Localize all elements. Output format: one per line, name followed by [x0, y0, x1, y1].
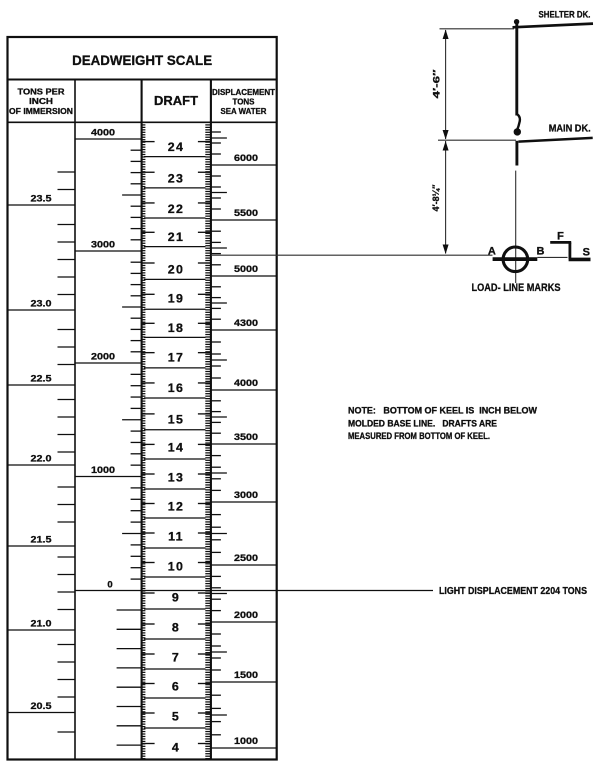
- svg-text:5000: 5000: [234, 264, 258, 275]
- svg-text:23: 23: [168, 171, 184, 185]
- svg-text:4000: 4000: [234, 378, 258, 389]
- svg-text:4′-8¼″: 4′-8¼″: [431, 184, 442, 211]
- svg-text:DEADWEIGHT SCALE: DEADWEIGHT SCALE: [72, 52, 212, 68]
- svg-text:3000: 3000: [234, 490, 258, 501]
- svg-text:17: 17: [168, 351, 184, 365]
- svg-text:DRAFT: DRAFT: [154, 93, 198, 108]
- svg-text:NOTE: BOTTOM OF KEEL IS INC: NOTE: BOTTOM OF KEEL IS INCH BELOW: [348, 406, 538, 416]
- svg-text:1000: 1000: [234, 736, 258, 747]
- svg-text:2500: 2500: [234, 553, 258, 564]
- svg-text:11: 11: [168, 530, 184, 544]
- svg-text:LOAD- LINE MARKS: LOAD- LINE MARKS: [472, 282, 561, 294]
- svg-text:B: B: [537, 245, 545, 257]
- svg-text:S: S: [583, 246, 590, 258]
- svg-text:15: 15: [168, 413, 184, 427]
- svg-text:8: 8: [172, 621, 180, 635]
- svg-text:SEA WATER: SEA WATER: [221, 106, 268, 116]
- svg-text:7: 7: [172, 651, 180, 665]
- svg-text:16: 16: [168, 381, 184, 395]
- svg-text:TONS: TONS: [233, 97, 255, 107]
- svg-text:22.0: 22.0: [31, 454, 52, 465]
- svg-text:4: 4: [172, 741, 180, 755]
- svg-text:5500: 5500: [234, 208, 258, 219]
- svg-text:1000: 1000: [91, 465, 115, 476]
- svg-text:F: F: [557, 231, 564, 243]
- svg-text:21: 21: [168, 230, 184, 244]
- svg-text:18: 18: [168, 321, 184, 335]
- svg-text:5: 5: [172, 710, 180, 724]
- svg-text:24: 24: [168, 140, 184, 154]
- svg-text:21.0: 21.0: [31, 619, 52, 630]
- svg-text:MOLDED BASE LINE. DRAFTS ARE: MOLDED BASE LINE. DRAFTS ARE: [348, 418, 497, 428]
- svg-text:2000: 2000: [91, 352, 115, 363]
- svg-text:A: A: [488, 245, 496, 257]
- svg-text:22.5: 22.5: [31, 374, 53, 385]
- svg-text:INCH: INCH: [29, 96, 53, 106]
- svg-text:23.0: 23.0: [31, 299, 52, 310]
- svg-text:OF IMMERSION: OF IMMERSION: [9, 106, 73, 116]
- svg-text:23.5: 23.5: [31, 194, 53, 205]
- svg-text:10: 10: [168, 560, 184, 574]
- svg-text:3000: 3000: [91, 240, 115, 251]
- svg-text:0: 0: [107, 580, 112, 591]
- svg-text:9: 9: [172, 591, 180, 605]
- svg-text:LIGHT DISPLACEMENT 2204 TONS: LIGHT DISPLACEMENT 2204 TONS: [439, 586, 587, 597]
- svg-text:MAIN DK.: MAIN DK.: [549, 124, 591, 135]
- svg-text:MEASURED FROM BOTTOM OF KEEL.: MEASURED FROM BOTTOM OF KEEL.: [348, 431, 490, 441]
- svg-text:19: 19: [168, 292, 184, 306]
- svg-text:DISPLACEMENT: DISPLACEMENT: [212, 87, 276, 97]
- svg-text:4′-6″: 4′-6″: [432, 69, 443, 99]
- svg-text:3500: 3500: [234, 432, 258, 443]
- svg-text:22: 22: [168, 202, 184, 216]
- svg-text:SHELTER DK.: SHELTER DK.: [539, 10, 591, 20]
- svg-text:1500: 1500: [234, 670, 258, 681]
- svg-text:13: 13: [168, 471, 184, 485]
- svg-text:20.5: 20.5: [31, 701, 53, 712]
- svg-text:6: 6: [172, 680, 180, 694]
- svg-text:14: 14: [168, 441, 184, 455]
- svg-text:6000: 6000: [234, 153, 258, 164]
- svg-text:2000: 2000: [234, 610, 258, 621]
- svg-text:20: 20: [168, 263, 184, 277]
- svg-text:4000: 4000: [91, 128, 115, 139]
- svg-text:4300: 4300: [234, 318, 258, 329]
- svg-text:21.5: 21.5: [31, 535, 53, 546]
- svg-text:12: 12: [168, 500, 184, 514]
- svg-text:TONS PER: TONS PER: [18, 87, 66, 97]
